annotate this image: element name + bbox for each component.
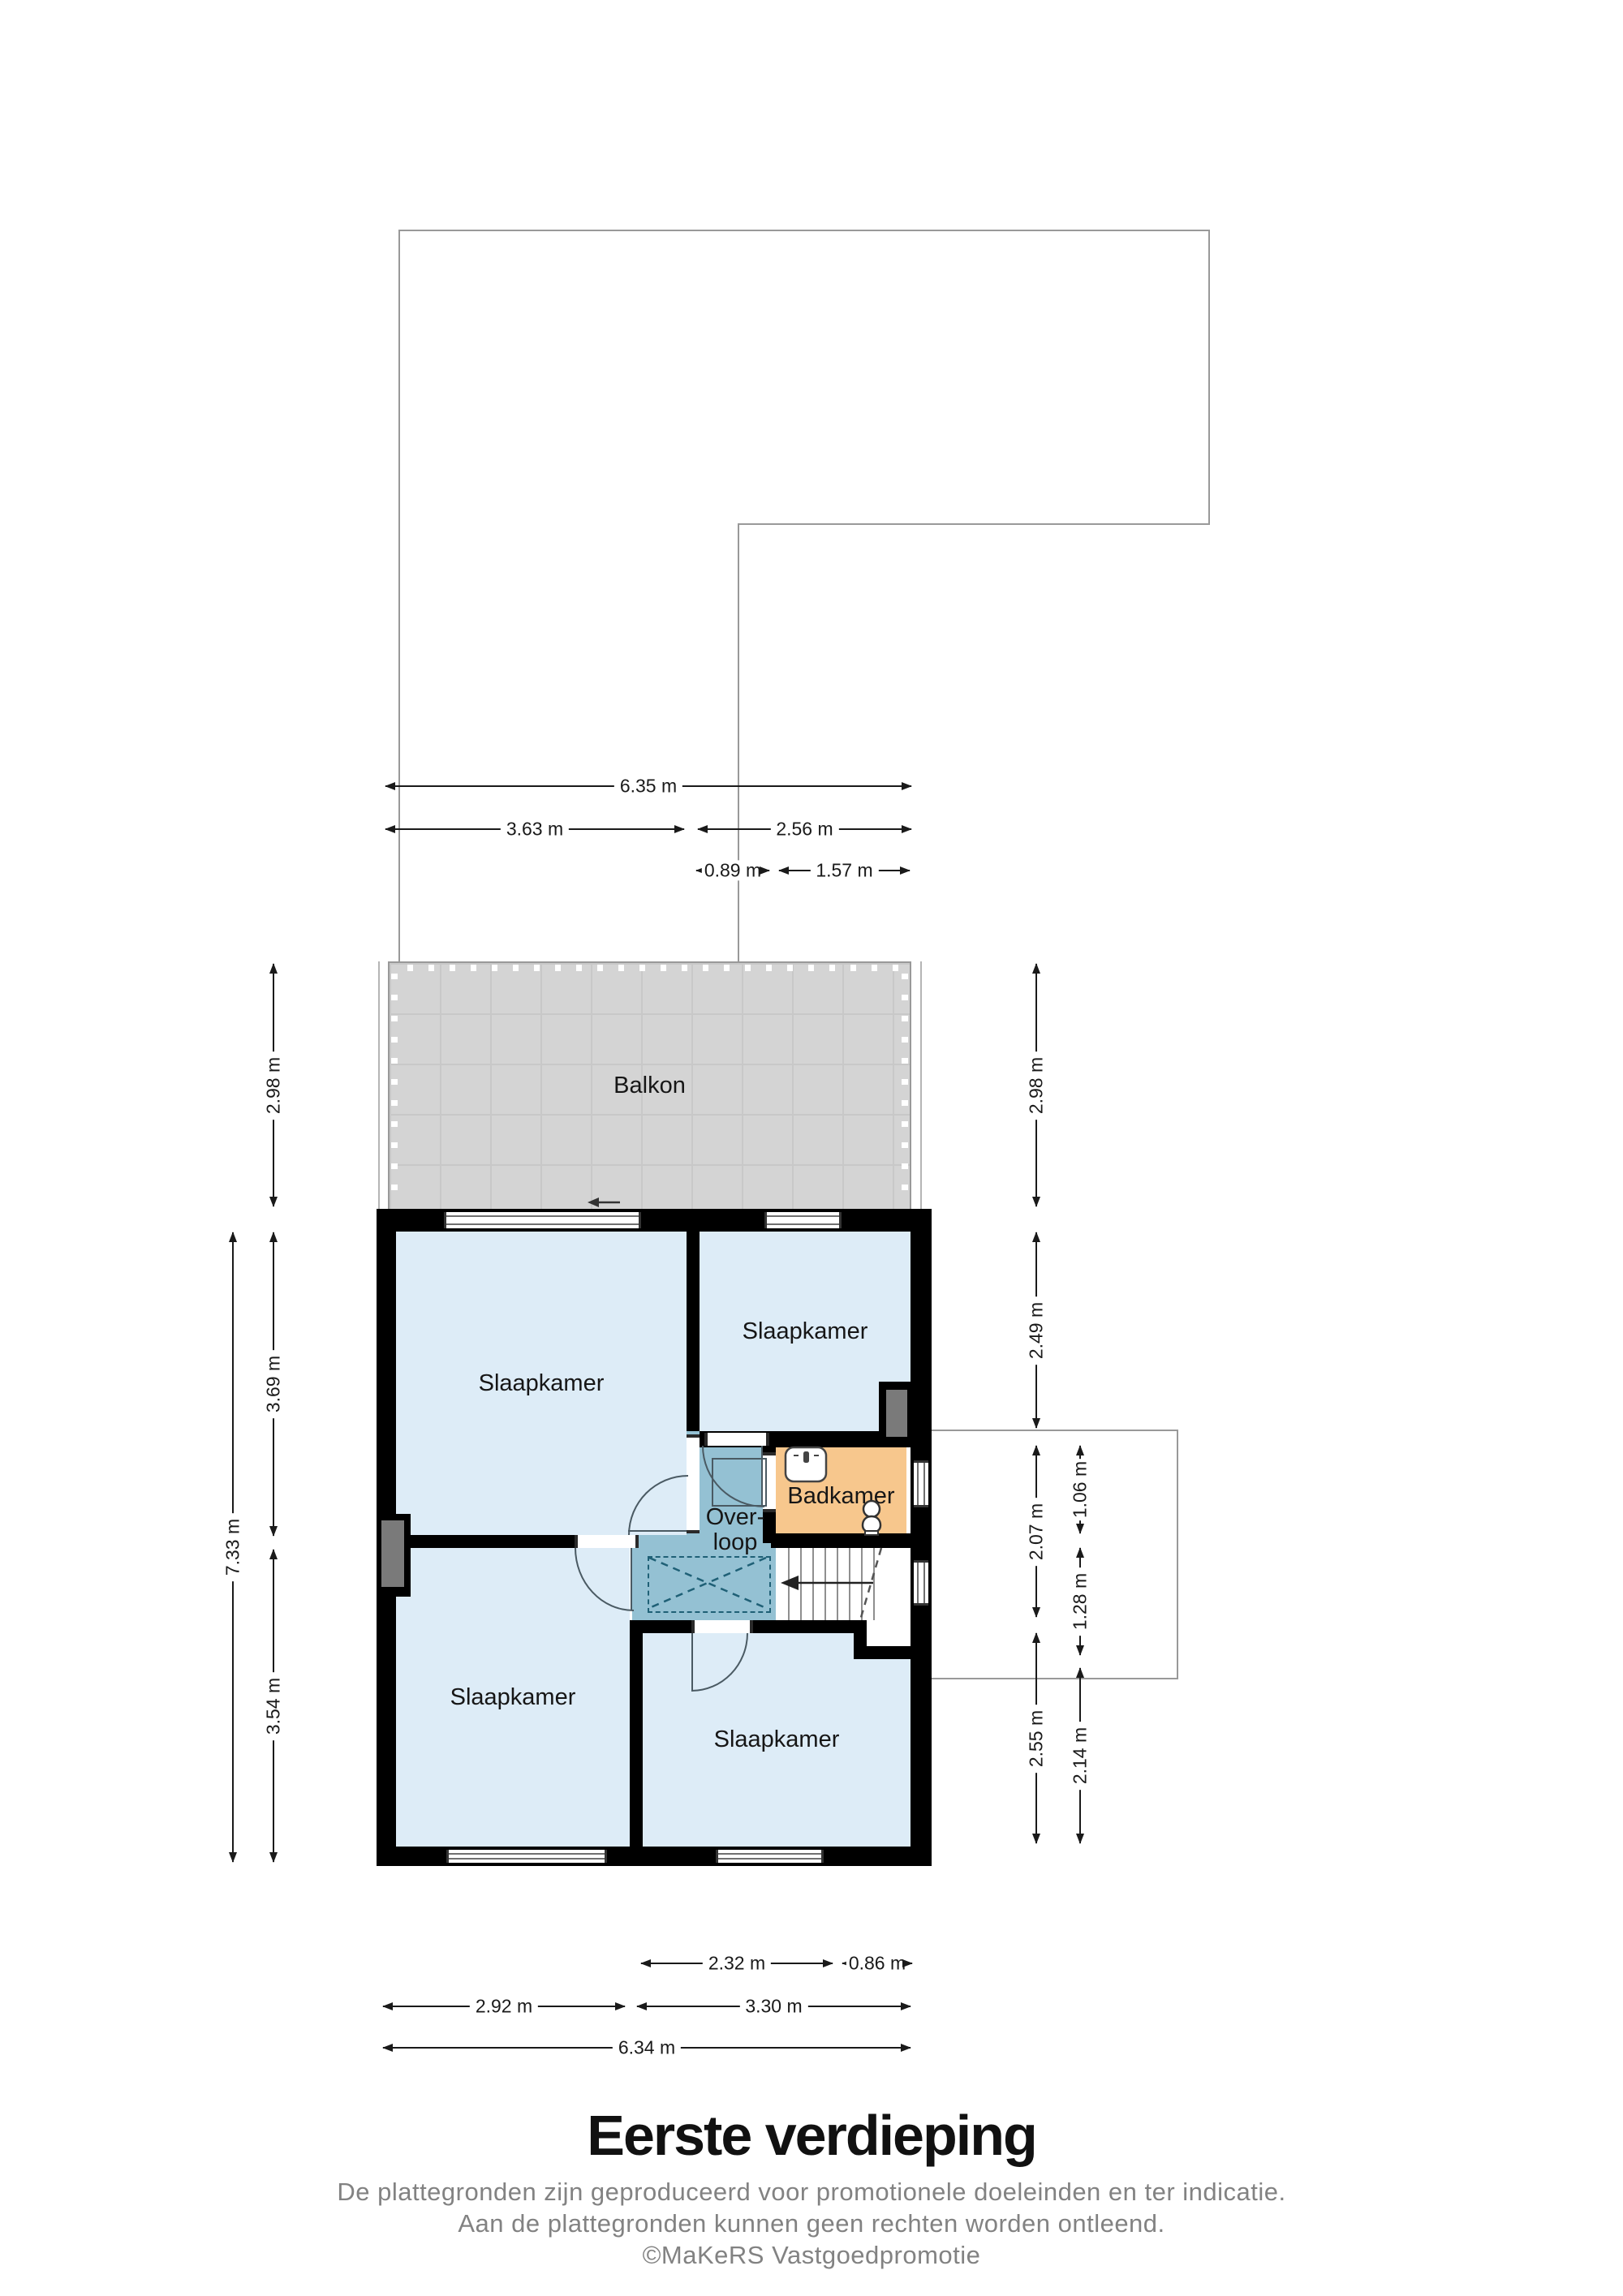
dim-bottom-292: 2.92 m: [383, 2006, 625, 2007]
plan-details-layer: [0, 0, 1623, 2296]
dim-bottom-232: 2.32 m: [641, 1963, 833, 1964]
disclaimer-line2: Aan de plattegronden kunnen geen rechten…: [0, 2208, 1623, 2239]
dim-bottom-330: 3.30 m: [637, 2006, 911, 2007]
dim-balcony-right: 2.56 m: [698, 828, 911, 830]
page-title: Eerste verdieping: [0, 2103, 1623, 2168]
stair-cut-line: [860, 1548, 881, 1620]
floorplan-page: Balkon Slaapkamer Slaapkamer Slaapkamer …: [0, 0, 1623, 2296]
dim-left-369: 3.69 m: [273, 1232, 274, 1536]
dim-right-249: 2.49 m: [1035, 1232, 1037, 1428]
dim-balcony-left: 3.63 m: [385, 828, 684, 830]
toilet-icon: [863, 1501, 880, 1535]
dim-bottom-086: 0.86 m: [842, 1963, 912, 1964]
dim-plan-depth: 7.33 m: [232, 1232, 234, 1862]
disclaimer-line3: ©MaKeRS Vastgoedpromotie: [0, 2239, 1623, 2271]
landing-label-line2: loop: [706, 1530, 765, 1555]
landing-label: Over- loop: [706, 1505, 765, 1555]
dim-balcony-width: 6.35 m: [385, 785, 911, 787]
dim-balcony-depth-right: 2.98 m: [1035, 964, 1037, 1206]
disclaimer-line1: De plattegronden zijn geproduceerd voor …: [0, 2176, 1623, 2208]
dim-right-207: 2.07 m: [1035, 1446, 1037, 1617]
sink-icon: [786, 1447, 826, 1481]
stair-direction-arrow-icon: [781, 1576, 873, 1590]
dim-right-106: 1.06 m: [1079, 1446, 1081, 1533]
dim-bottom-634: 6.34 m: [383, 2047, 911, 2049]
dim-top-089: 0.89 m: [696, 870, 769, 871]
slider-direction-arrow-icon: [588, 1197, 620, 1207]
dim-right-128: 1.28 m: [1079, 1548, 1081, 1655]
dim-balcony-depth-left: 2.98 m: [273, 964, 274, 1206]
landing-label-line1: Over-: [706, 1505, 765, 1530]
dim-top-157: 1.57 m: [779, 870, 910, 871]
disclaimer: De plattegronden zijn geproduceerd voor …: [0, 2176, 1623, 2271]
dim-right-255: 2.55 m: [1035, 1633, 1037, 1843]
dim-left-354: 3.54 m: [273, 1550, 274, 1862]
dim-right-214: 2.14 m: [1079, 1668, 1081, 1843]
